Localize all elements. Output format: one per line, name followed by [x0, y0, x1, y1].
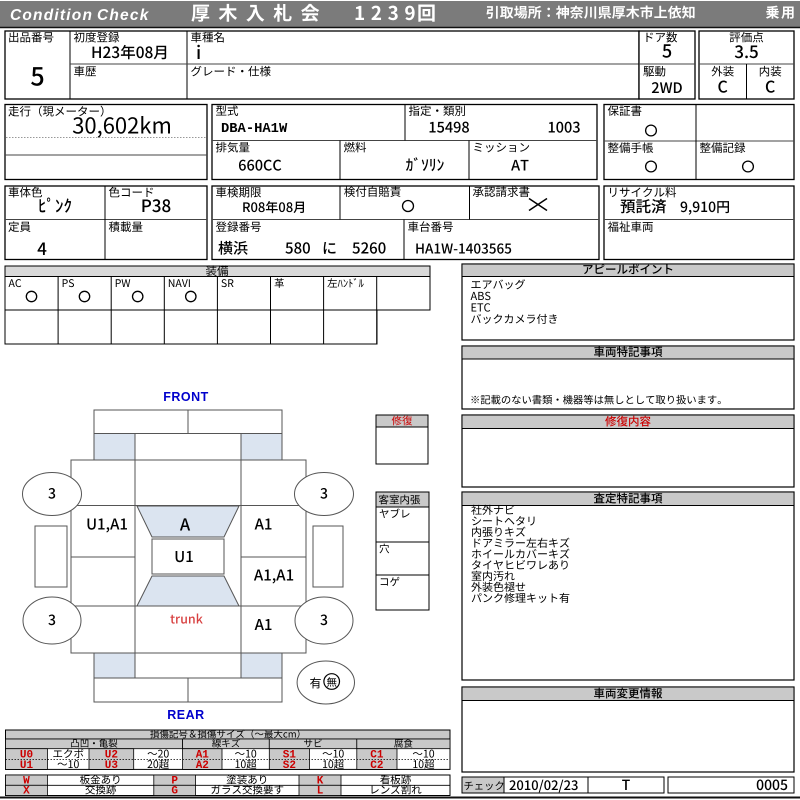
svg-text:G: G	[171, 786, 178, 798]
svg-text:L: L	[317, 786, 324, 798]
svg-text:Condition: Condition	[10, 7, 93, 24]
svg-text:S2: S2	[283, 760, 296, 772]
svg-text:U1: U1	[20, 760, 34, 772]
svg-text:C2: C2	[370, 760, 383, 772]
svg-text:U3: U3	[105, 760, 119, 772]
svg-text:DBA-HA1W: DBA-HA1W	[221, 122, 288, 137]
svg-text:X: X	[23, 786, 30, 798]
svg-text:A2: A2	[196, 760, 209, 772]
svg-text:FRONT: FRONT	[163, 390, 209, 404]
svg-text:REAR: REAR	[167, 708, 204, 722]
svg-text:Check: Check	[97, 7, 150, 24]
